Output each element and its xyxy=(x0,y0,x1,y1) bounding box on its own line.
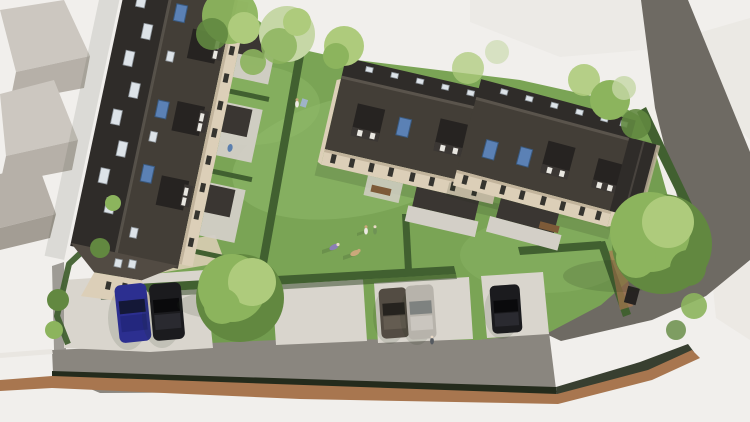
hedge-bush xyxy=(45,321,63,339)
render-viewport: Aerial CGI render of a residential housi… xyxy=(0,0,750,422)
car-glass xyxy=(119,299,146,315)
roof-vent xyxy=(128,259,137,268)
tree xyxy=(196,18,228,50)
person-head xyxy=(365,225,368,228)
person-head xyxy=(357,249,360,252)
bush xyxy=(681,293,707,319)
car-glass xyxy=(153,298,180,313)
person-standing xyxy=(373,227,377,234)
tree xyxy=(228,12,260,44)
person-standing xyxy=(364,227,368,234)
person-head xyxy=(431,336,434,339)
bush xyxy=(666,320,686,340)
car-roof xyxy=(410,315,433,331)
aerial-render: Aerial CGI render of a residential housi… xyxy=(0,0,750,422)
car-roof xyxy=(154,313,181,330)
ridge-vent xyxy=(441,84,449,90)
person-head xyxy=(296,98,299,101)
roof-vent xyxy=(129,227,138,238)
hedge-bush xyxy=(105,195,121,211)
hedge-bush xyxy=(47,289,69,311)
roof-vent xyxy=(166,51,175,62)
ridge-vent xyxy=(391,72,399,78)
tree-large xyxy=(670,250,706,286)
tree xyxy=(283,8,311,36)
car-glass xyxy=(409,300,432,315)
hedge-bush xyxy=(90,238,110,258)
tree-highlight xyxy=(642,196,694,248)
ridge-vent xyxy=(416,78,424,84)
bush-large xyxy=(204,288,240,324)
car-roof xyxy=(494,312,519,327)
car-black-2 xyxy=(489,284,522,334)
car-glass xyxy=(493,299,518,313)
tree xyxy=(323,43,349,69)
person-head xyxy=(374,225,377,228)
tree-faded xyxy=(452,52,484,84)
tree-large xyxy=(616,238,656,278)
tree xyxy=(621,109,651,139)
car-black xyxy=(149,282,186,342)
tree xyxy=(612,76,636,100)
car-silver xyxy=(405,284,437,340)
tree-faded xyxy=(485,40,509,64)
person-standing xyxy=(430,338,434,345)
roof-vent xyxy=(149,131,158,142)
ridge-vent xyxy=(467,90,475,96)
roof-vent xyxy=(114,259,123,268)
ridge-vent xyxy=(365,66,373,72)
person-head xyxy=(336,243,339,246)
person-standing xyxy=(295,100,299,107)
tree xyxy=(240,49,266,75)
